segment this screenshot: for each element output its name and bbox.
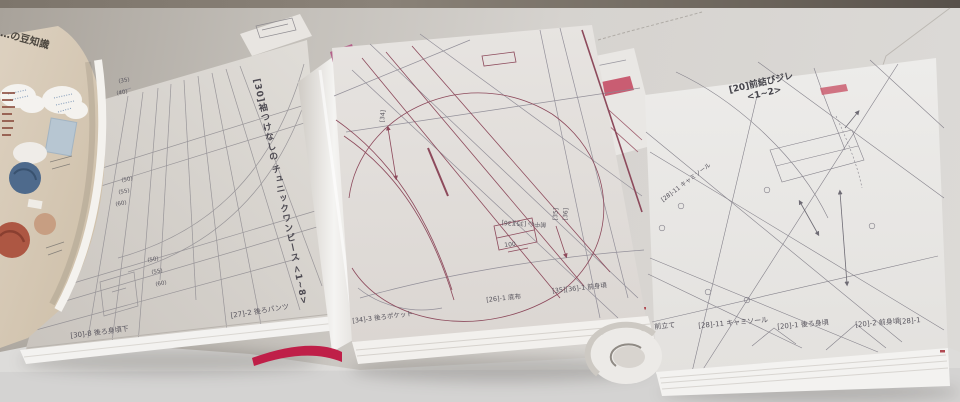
fabric-swatch-blue [45,118,77,156]
annotation: [35] [552,208,560,221]
annotation: [36] [562,208,570,221]
annotation: [34] [379,110,387,123]
photo-three-sewing-pattern-books: …の豆知識 [30]袖つけなしの チュニックワンピース <1~8> (35) (… [0,0,960,402]
fabric-roll-white [13,142,47,164]
annotation: 100 [504,241,516,249]
left-info-page [0,0,960,402]
fabric-roll-tan [34,213,56,235]
